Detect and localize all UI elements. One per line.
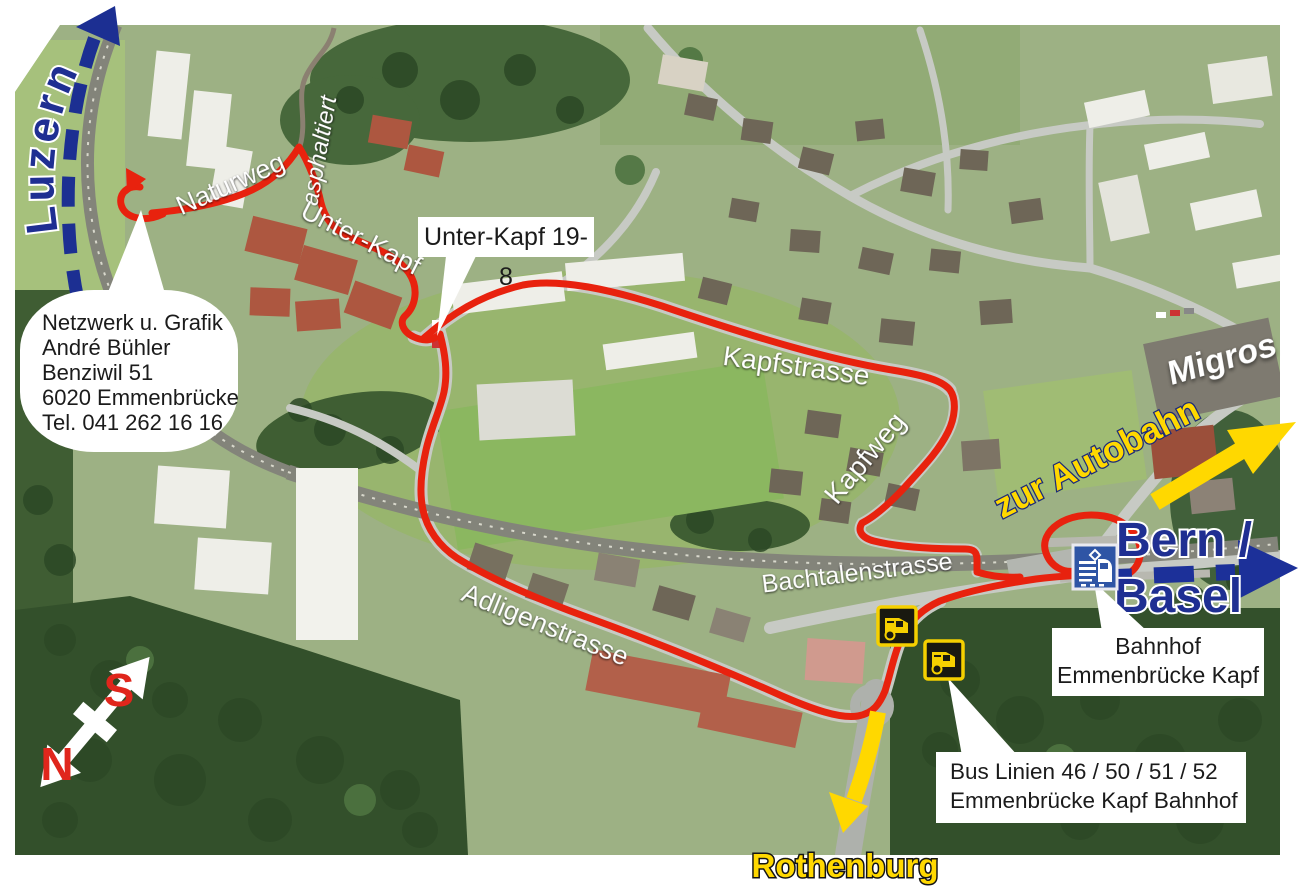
address-line: 6020 Emmenbrücke — [42, 385, 242, 410]
compass-south-label: S — [104, 664, 135, 716]
bahnhof-callout-line: Emmenbrücke Kapf — [1052, 661, 1264, 690]
bahnhof-callout: Bahnhof Emmenbrücke Kapf — [1052, 628, 1264, 696]
bahnhof-callout-line: Bahnhof — [1052, 632, 1264, 661]
bus-stop-icon — [878, 607, 916, 645]
bus-lines-callout-line: Bus Linien 46 / 50 / 51 / 52 — [950, 757, 1246, 786]
compass-north-label: N — [40, 738, 73, 790]
bus-lines-callout-line: Emmenbrücke Kapf Bahnhof — [950, 786, 1246, 815]
unter-kapf-callout: Unter-Kapf 19-8 — [418, 217, 594, 257]
bus-lines-callout: Bus Linien 46 / 50 / 51 / 52 Emmenbrücke… — [936, 752, 1246, 823]
train-station-icon — [1073, 545, 1117, 589]
bern-basel-label-line1: Bern / — [1116, 514, 1252, 567]
address-line: Tel. 041 262 16 16 — [42, 410, 242, 435]
bern-basel-label-line2: Basel — [1114, 570, 1242, 623]
address-line: Benziwil 51 — [42, 360, 242, 385]
address-callout: Netzwerk u. Grafik André Bühler Benziwil… — [42, 310, 242, 435]
bus-stop-icon — [925, 641, 963, 679]
route-map: Luzern Naturweg asphaltiert Unter-Kapf K… — [0, 0, 1301, 887]
rothenburg-label: Rothenburg — [752, 847, 939, 884]
address-line: Netzwerk u. Grafik — [42, 310, 242, 335]
address-line: André Bühler — [42, 335, 242, 360]
